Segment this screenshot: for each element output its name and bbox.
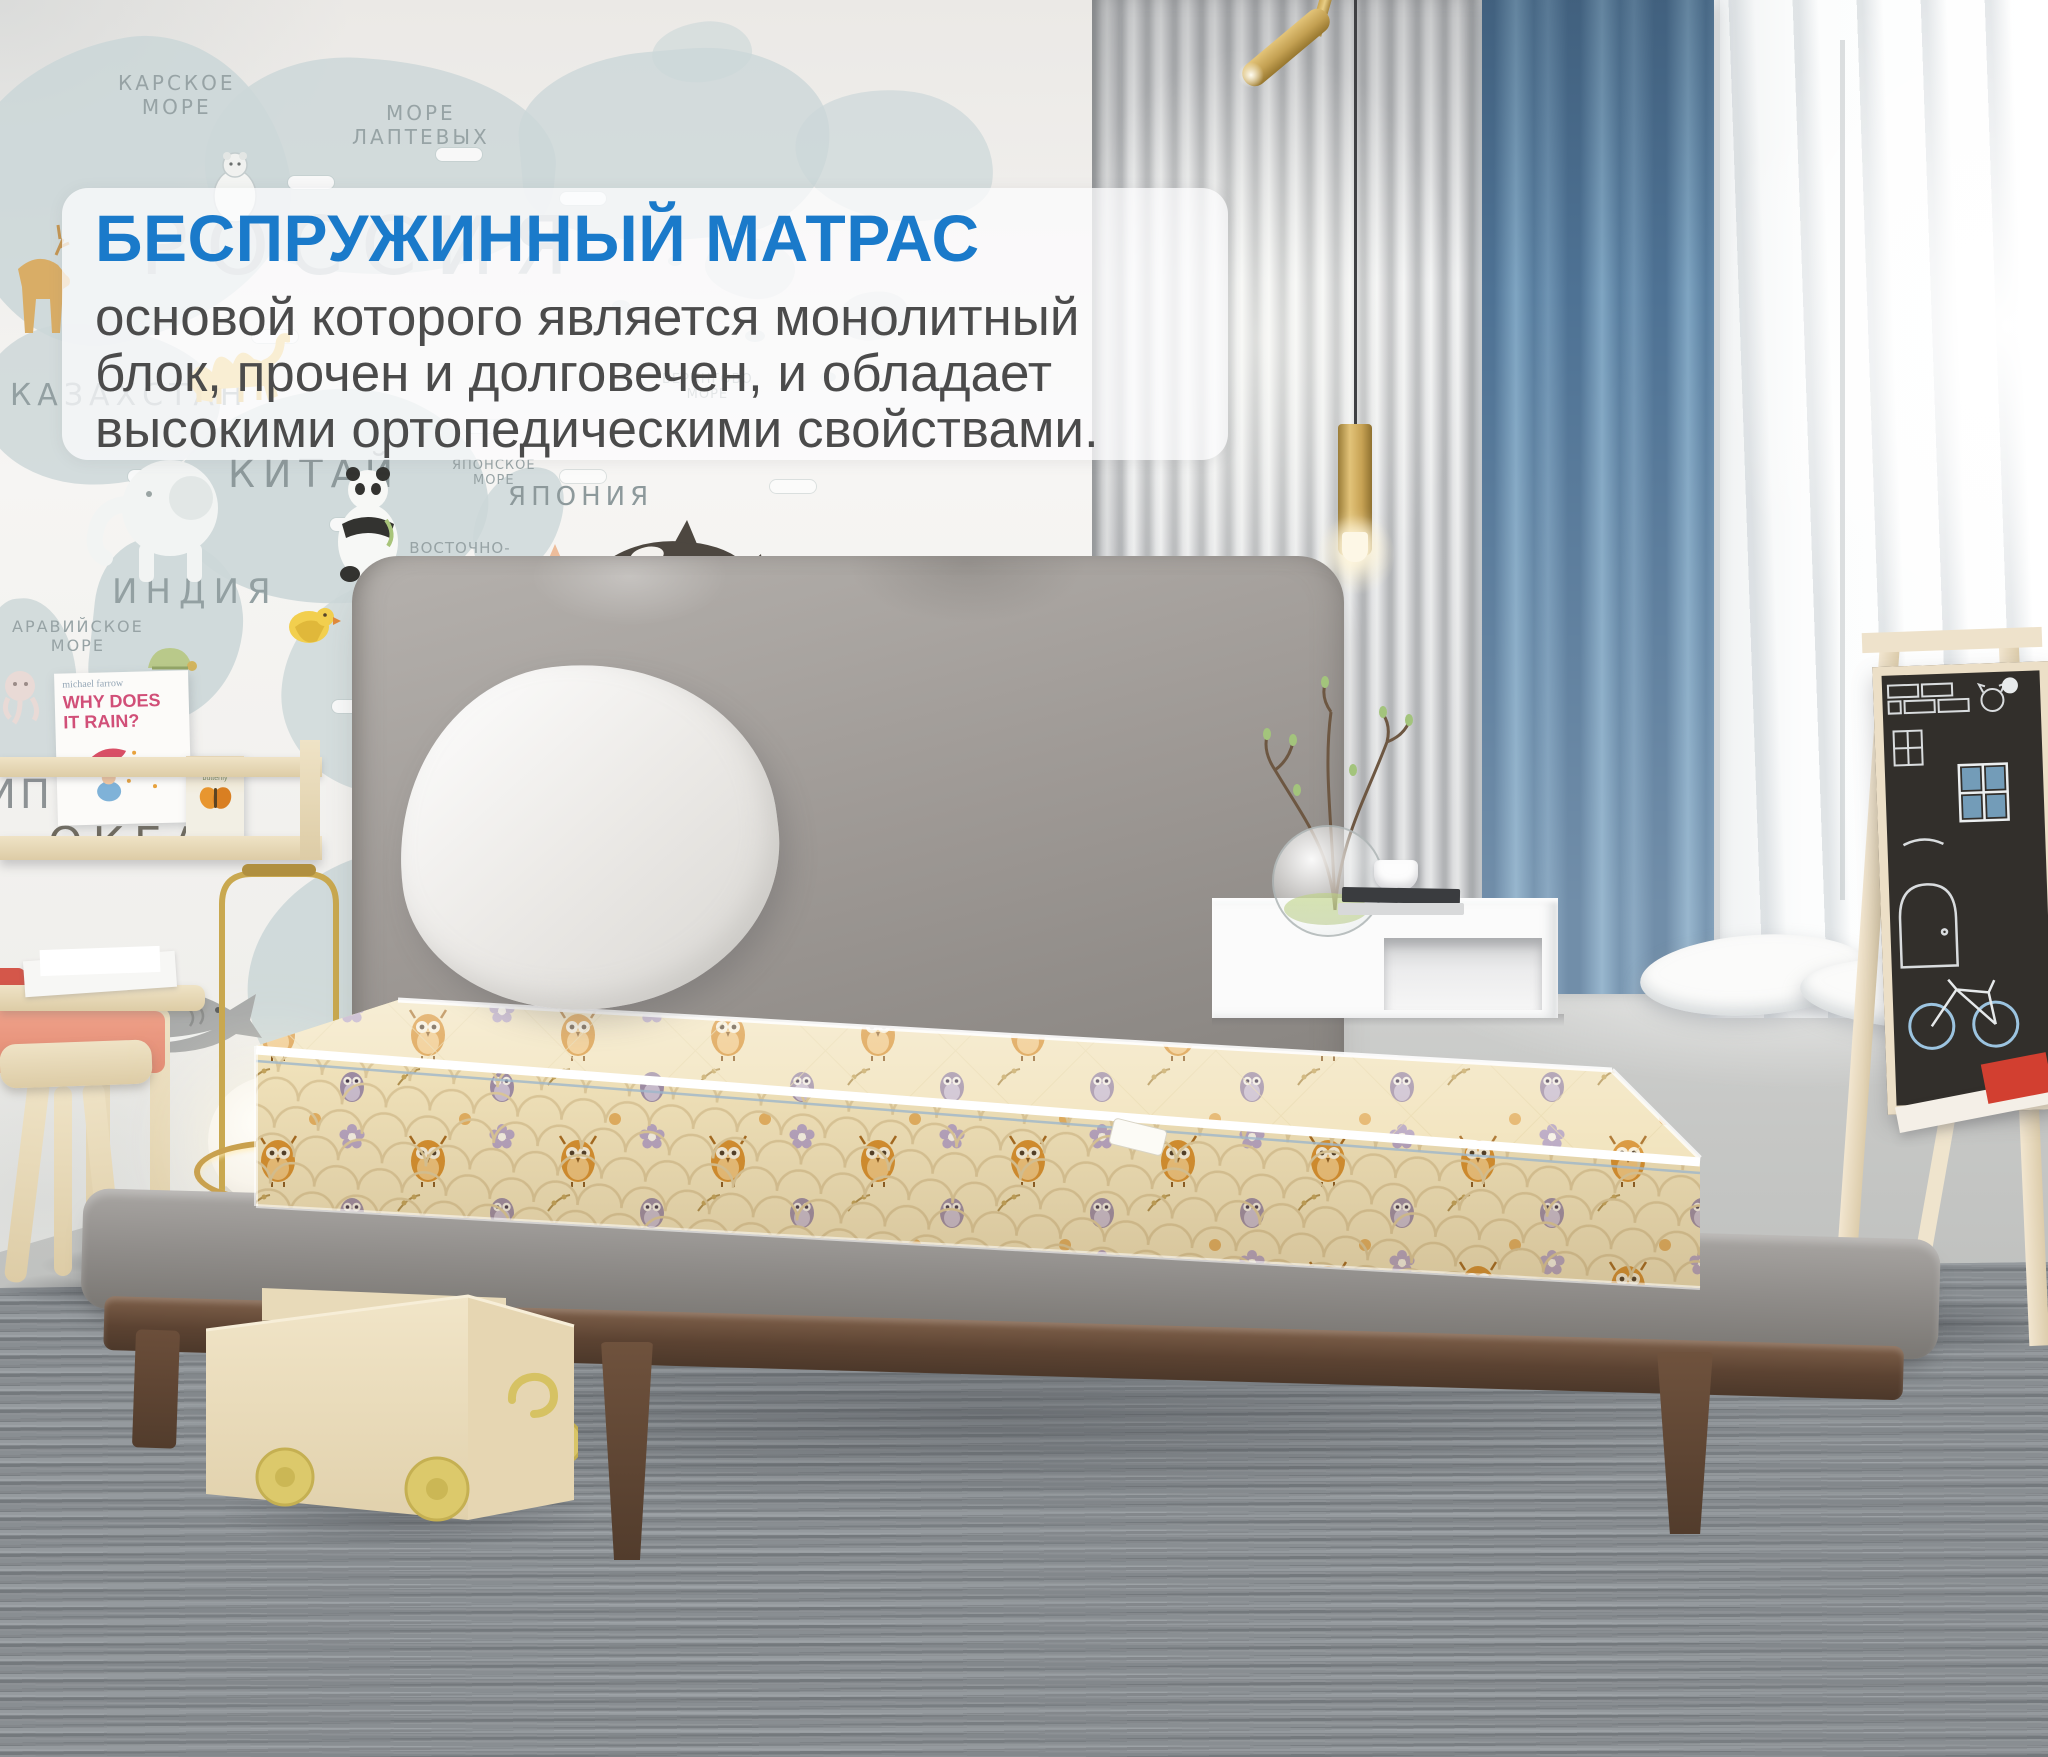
map-parrot-illustration xyxy=(275,595,345,655)
book-why-does-it-rain: michael farrow WHY DOES IT RAIN? xyxy=(54,670,192,825)
blue-curtain xyxy=(1482,0,1714,994)
overlay-body-text: основой которого является монолитный бло… xyxy=(95,290,1099,458)
info-overlay-panel: БЕСПРУЖИННЫЙ МАТРАС основой которого явл… xyxy=(62,188,1228,460)
bookshelf-front-rail xyxy=(0,757,322,777)
overlay-title: БЕСПРУЖИННЫЙ МАТРАС xyxy=(95,200,980,276)
map-label-edge-fragment: ИП xyxy=(0,772,54,819)
mattress-with-owl-print xyxy=(240,985,1715,1315)
book-stack-dark xyxy=(1342,887,1460,904)
map-label-pill xyxy=(436,148,482,161)
pendant-light-glow xyxy=(1238,62,1264,88)
pendant-cable xyxy=(1354,0,1357,428)
easel-chalkboard xyxy=(1872,661,2048,1115)
map-label-pill xyxy=(770,480,816,493)
map-label-japan: ЯПОНИЯ xyxy=(508,482,653,513)
book-stack-light xyxy=(1338,903,1464,915)
window-frame-line xyxy=(1840,40,1845,900)
pendant-lamp-bulb xyxy=(1342,532,1368,562)
book1-title: WHY DOES IT RAIN? xyxy=(63,689,186,732)
map-label-arabian-sea: АРАВИЙСКОЕ МОРЕ xyxy=(12,618,144,656)
bookshelf-bottom-board xyxy=(0,836,322,860)
children-bedroom-product-banner: КАРСКОЕ МОРЕ МОРЕ ЛАПТЕВЫХ РОССИЯ КАЗАХС… xyxy=(0,0,2048,1757)
bookshelf-side-cap xyxy=(300,740,320,860)
map-label-kara-sea: КАРСКОЕ МОРЕ xyxy=(118,72,235,119)
map-elephant-illustration xyxy=(75,448,235,588)
nightstand-open-shelf xyxy=(1384,938,1542,1010)
stool-seat xyxy=(0,1039,153,1088)
bed-leg xyxy=(132,1329,180,1448)
paper-sheet xyxy=(40,946,161,976)
book2-butterfly-illustration xyxy=(195,782,235,816)
overlay-body-line: основой которого является монолитный xyxy=(95,290,1099,346)
overlay-body-line: высокими ортопедическими свойствами. xyxy=(95,402,1099,458)
book1-author: michael farrow xyxy=(62,676,184,690)
map-label-laptev-sea: МОРЕ ЛАПТЕВЫХ xyxy=(352,102,490,149)
cup xyxy=(1374,860,1418,890)
wooden-toy-cart xyxy=(206,1282,578,1527)
map-octopus-illustration xyxy=(0,668,46,726)
overlay-body-line: блок, прочен и долговечен, и обладает xyxy=(95,346,1099,402)
chalk-doodles xyxy=(1882,671,2036,1088)
stool-leg xyxy=(54,1086,72,1276)
